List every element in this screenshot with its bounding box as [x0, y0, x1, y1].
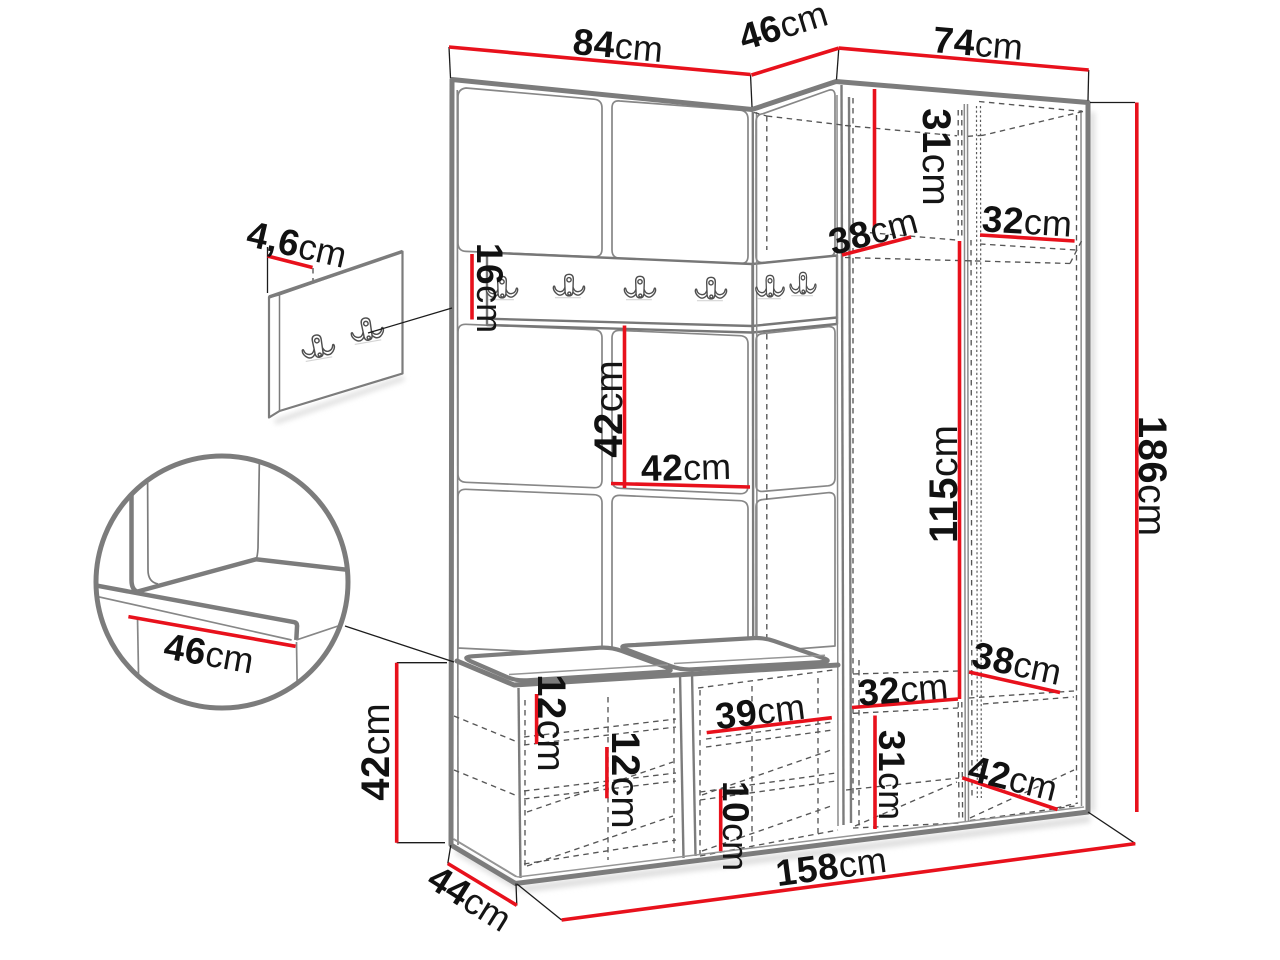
svg-text:32cm: 32cm	[981, 198, 1073, 244]
svg-text:16cm: 16cm	[469, 243, 510, 333]
svg-text:38cm: 38cm	[824, 200, 922, 263]
svg-text:42cm: 42cm	[587, 360, 631, 458]
svg-text:74cm: 74cm	[931, 19, 1024, 68]
svg-text:39cm: 39cm	[713, 686, 807, 738]
svg-text:4,6cm: 4,6cm	[243, 213, 351, 276]
svg-text:115cm: 115cm	[922, 425, 966, 543]
svg-text:186cm: 186cm	[1130, 416, 1174, 536]
svg-text:84cm: 84cm	[571, 21, 665, 70]
svg-text:42cm: 42cm	[964, 748, 1061, 810]
svg-text:42cm: 42cm	[354, 703, 398, 801]
svg-text:12cm: 12cm	[529, 674, 573, 772]
svg-text:38cm: 38cm	[969, 634, 1066, 693]
svg-text:10cm: 10cm	[715, 781, 756, 871]
svg-text:46cm: 46cm	[734, 0, 832, 58]
svg-text:31cm: 31cm	[914, 108, 958, 206]
svg-text:42cm: 42cm	[640, 446, 731, 489]
svg-text:31cm: 31cm	[871, 730, 912, 820]
svg-text:12cm: 12cm	[603, 731, 647, 829]
svg-text:32cm: 32cm	[856, 665, 949, 714]
